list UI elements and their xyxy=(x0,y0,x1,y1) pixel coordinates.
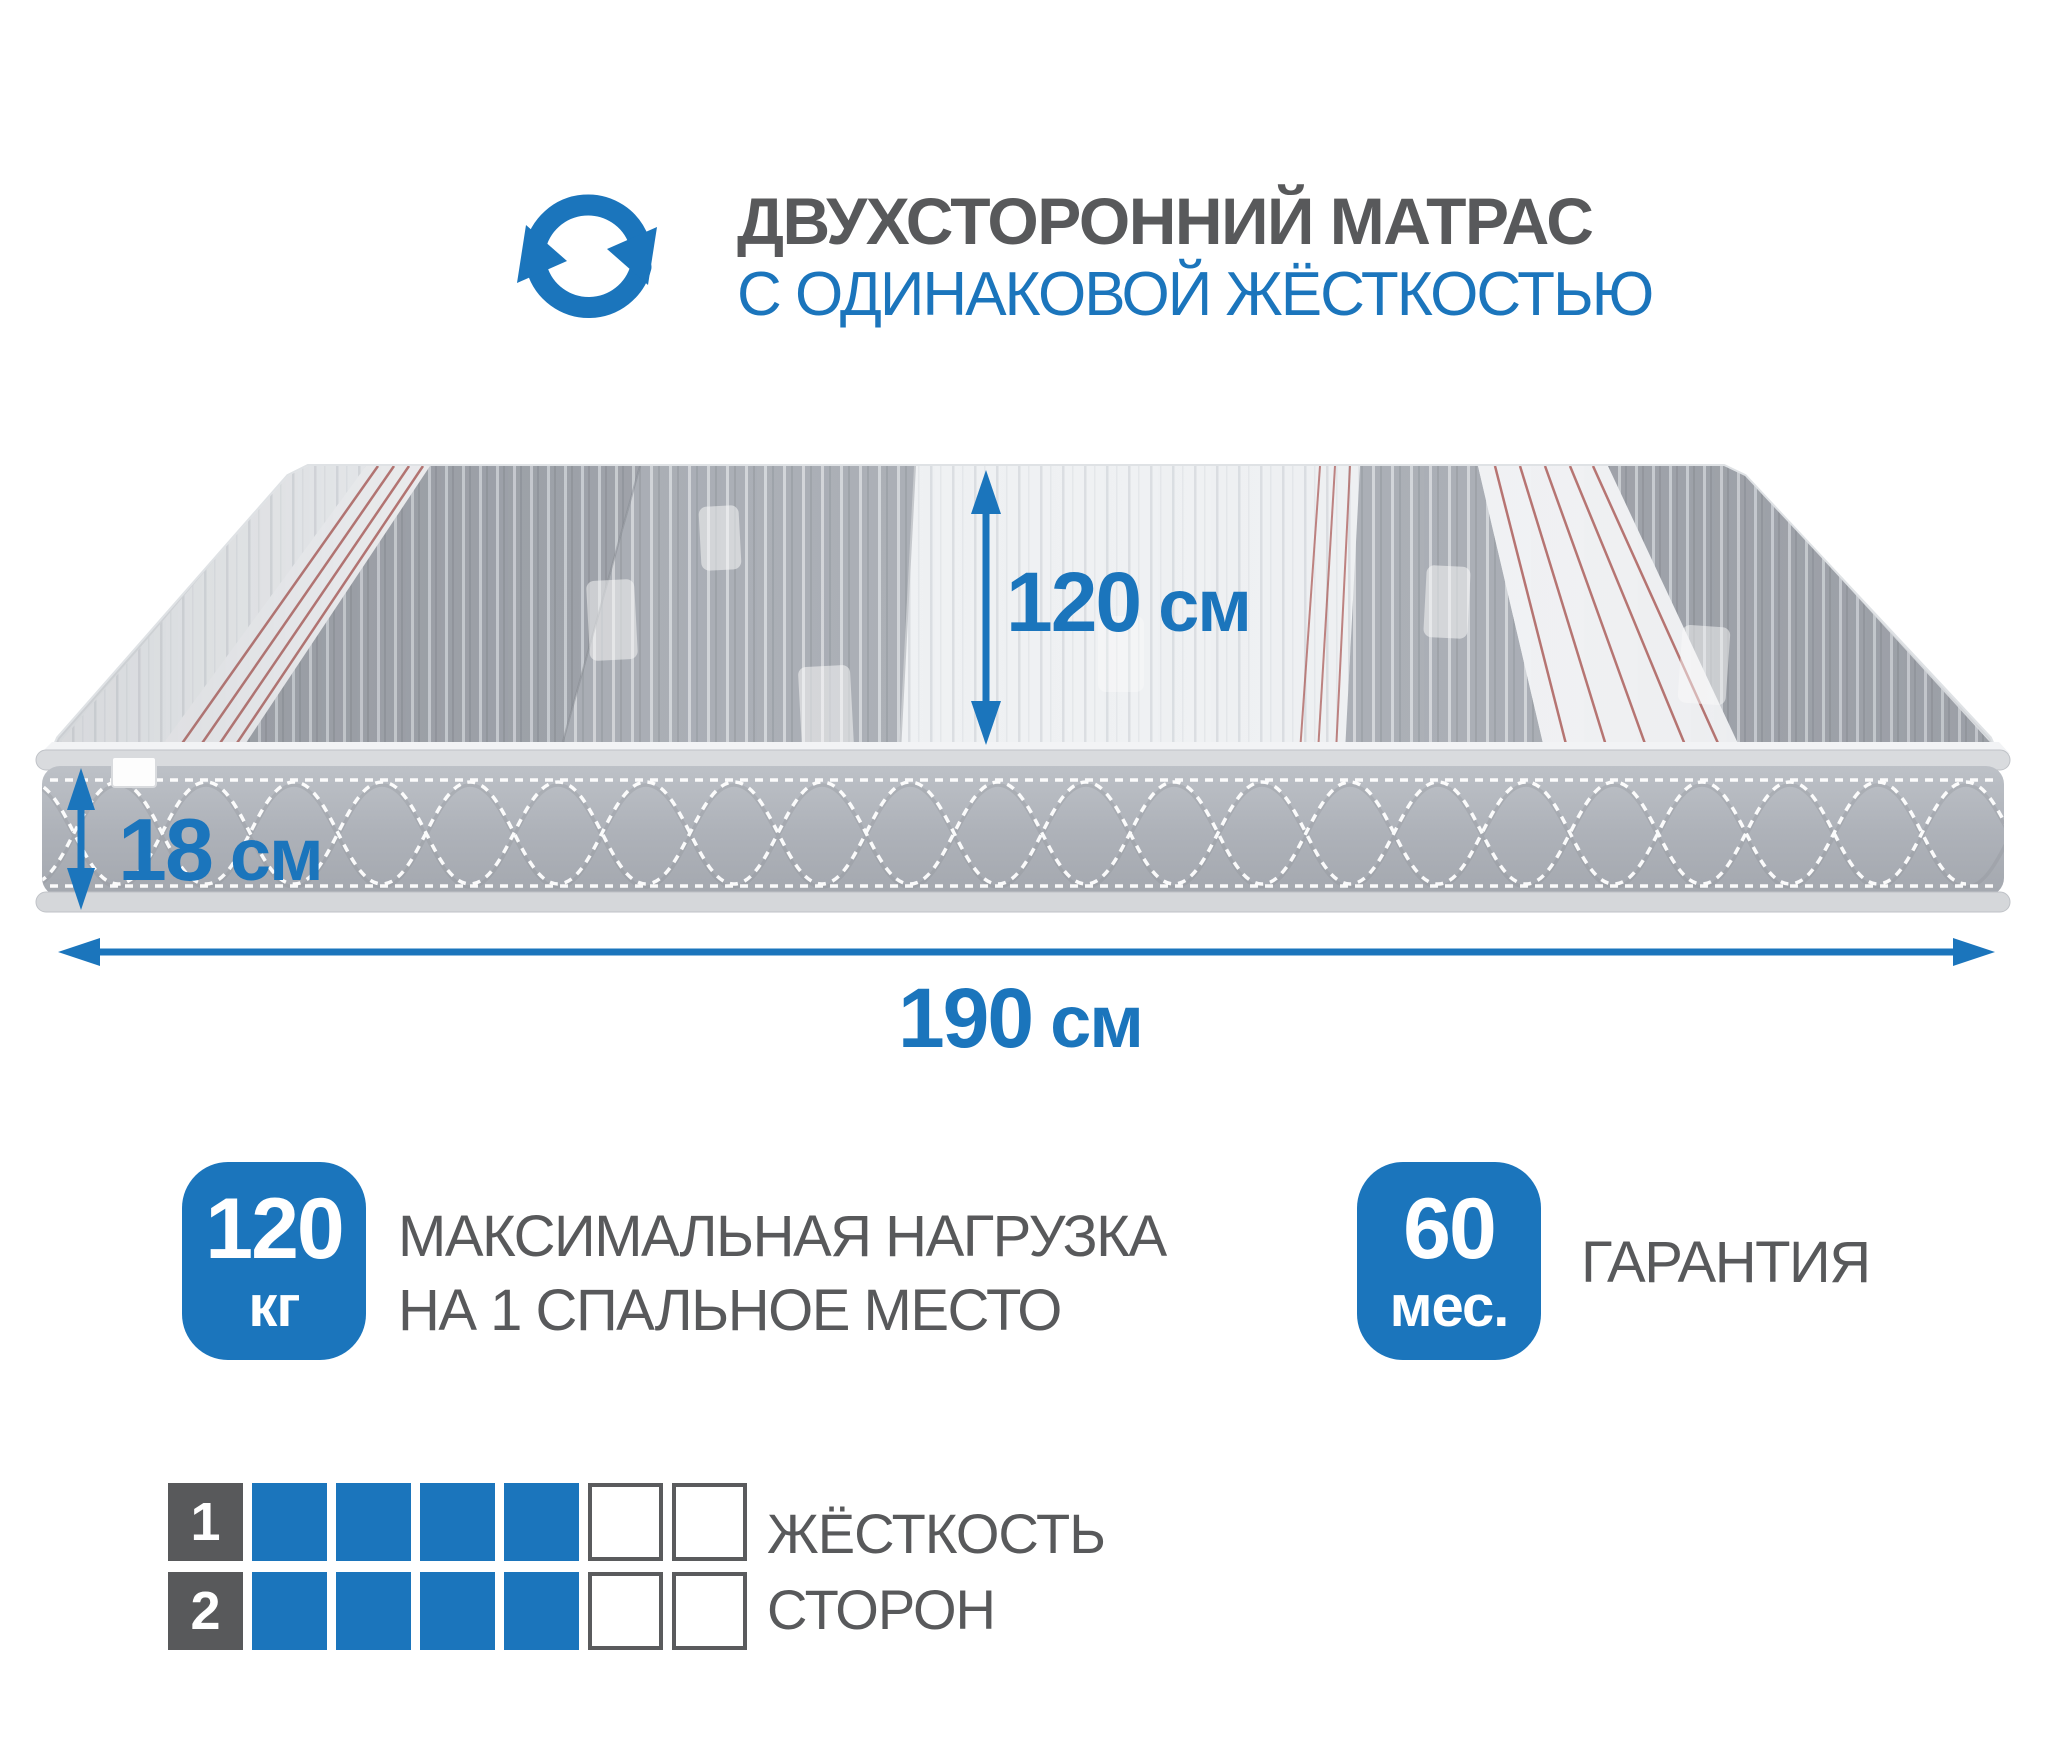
firmness-cell-filled xyxy=(252,1483,327,1561)
max-load-caption: МАКСИМАЛЬНАЯ НАГРУЗКА НА 1 СПАЛЬНОЕ МЕСТ… xyxy=(398,1200,1166,1348)
warranty-badge: 60 мес. xyxy=(1357,1162,1541,1360)
max-load-unit: кг xyxy=(248,1278,299,1336)
width-value-label: 120см xyxy=(1006,555,1250,649)
max-load-value: 120 xyxy=(205,1186,343,1272)
page-subtitle: С ОДИНАКОВОЙ ЖЁСТКОСТЬЮ xyxy=(737,264,1652,326)
firmness-cell-filled xyxy=(336,1483,411,1561)
length-arrow-icon xyxy=(58,938,1995,966)
max-load-badge: 120 кг xyxy=(182,1162,366,1360)
side-1-number: 1 xyxy=(168,1483,243,1561)
firmness-caption: ЖЁСТКОСТЬ СТОРОН xyxy=(767,1496,1105,1648)
dimension-length: 190см xyxy=(58,938,1995,1065)
firmness-cell-empty xyxy=(588,1483,663,1561)
page-title: ДВУХСТОРОННИЙ МАТРАС xyxy=(737,188,1592,254)
firmness-cell-empty xyxy=(672,1483,747,1561)
mattress-infographic: { "header": { "title": "ДВУХСТОРОННИЙ МА… xyxy=(0,0,2048,1757)
firmness-cell-filled xyxy=(504,1572,579,1650)
firmness-cell-filled xyxy=(252,1572,327,1650)
firmness-cell-filled xyxy=(336,1572,411,1650)
warranty-unit: мес. xyxy=(1390,1278,1509,1336)
warranty-value: 60 xyxy=(1403,1186,1495,1272)
length-value-label: 190см xyxy=(898,971,1142,1065)
firmness-cell-empty xyxy=(672,1572,747,1650)
rotate-arrows-icon xyxy=(513,181,661,329)
warranty-caption: ГАРАНТИЯ xyxy=(1581,1234,1870,1292)
firmness-caption-line2: СТОРОН xyxy=(767,1572,1105,1648)
firmness-row-side-1: 1 xyxy=(168,1483,747,1561)
firmness-cell-filled xyxy=(420,1572,495,1650)
max-load-caption-line1: МАКСИМАЛЬНАЯ НАГРУЗКА xyxy=(398,1200,1166,1274)
side-2-number: 2 xyxy=(168,1572,243,1650)
firmness-caption-line1: ЖЁСТКОСТЬ xyxy=(767,1496,1105,1572)
mattress-label-tag xyxy=(112,757,156,787)
firmness-row-side-2: 2 xyxy=(168,1572,747,1650)
firmness-cell-empty xyxy=(588,1572,663,1650)
max-load-caption-line2: НА 1 СПАЛЬНОЕ МЕСТО xyxy=(398,1274,1166,1348)
firmness-cell-filled xyxy=(420,1483,495,1561)
mattress-illustration: 120см 18см 190см xyxy=(0,420,2048,1080)
firmness-cell-filled xyxy=(504,1483,579,1561)
